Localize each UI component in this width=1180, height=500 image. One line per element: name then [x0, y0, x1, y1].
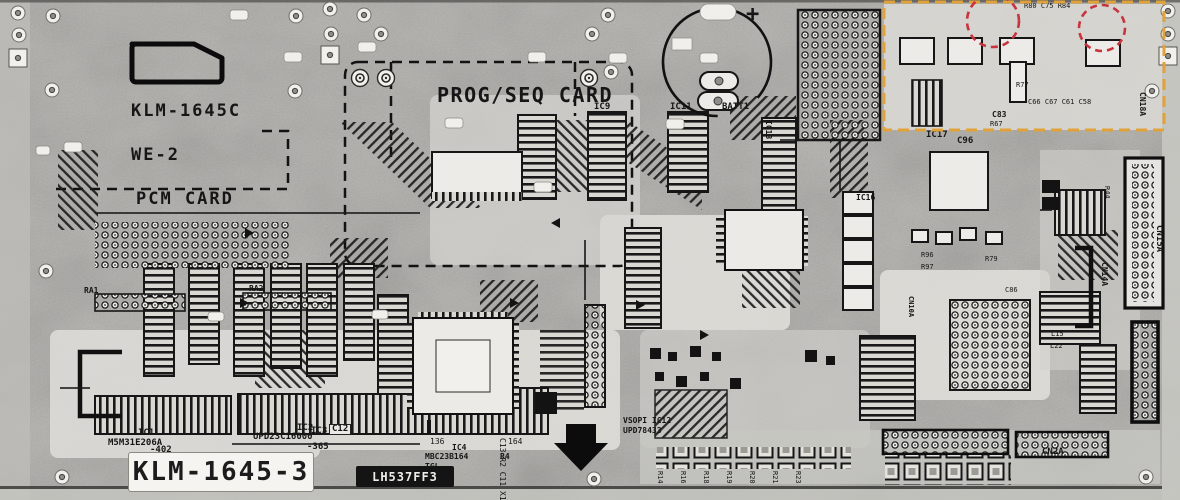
- cn14a-connector: [1132, 322, 1158, 422]
- resistor-grid: [885, 455, 1011, 485]
- pcb-scan-image: KLM-1645C WE-2 PCM CARD PROG/SEQ CARD + …: [0, 0, 1180, 500]
- cn15a-connector: [1125, 158, 1163, 308]
- qfp-ic: [407, 312, 519, 420]
- qfp-ic-2: [716, 210, 808, 270]
- pcb-artwork: [0, 0, 1180, 500]
- resistor-pack-column: [843, 192, 873, 310]
- via-field: [95, 222, 290, 268]
- resistor-row: [656, 447, 851, 469]
